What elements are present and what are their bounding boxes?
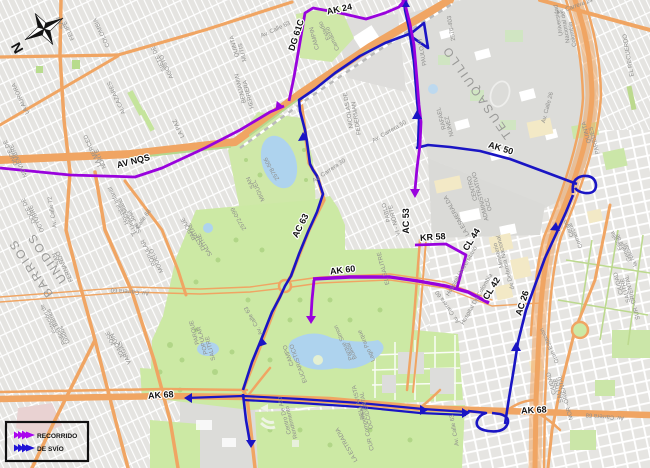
- svg-text:AC 53: AC 53: [401, 208, 411, 234]
- svg-text:AK 68: AK 68: [521, 404, 547, 415]
- svg-text:DE SVÍO: DE SVÍO: [37, 444, 64, 453]
- svg-text:AK 68: AK 68: [148, 389, 174, 401]
- svg-text:RECORRIDO: RECORRIDO: [37, 433, 77, 440]
- svg-text:KR 58: KR 58: [420, 231, 446, 243]
